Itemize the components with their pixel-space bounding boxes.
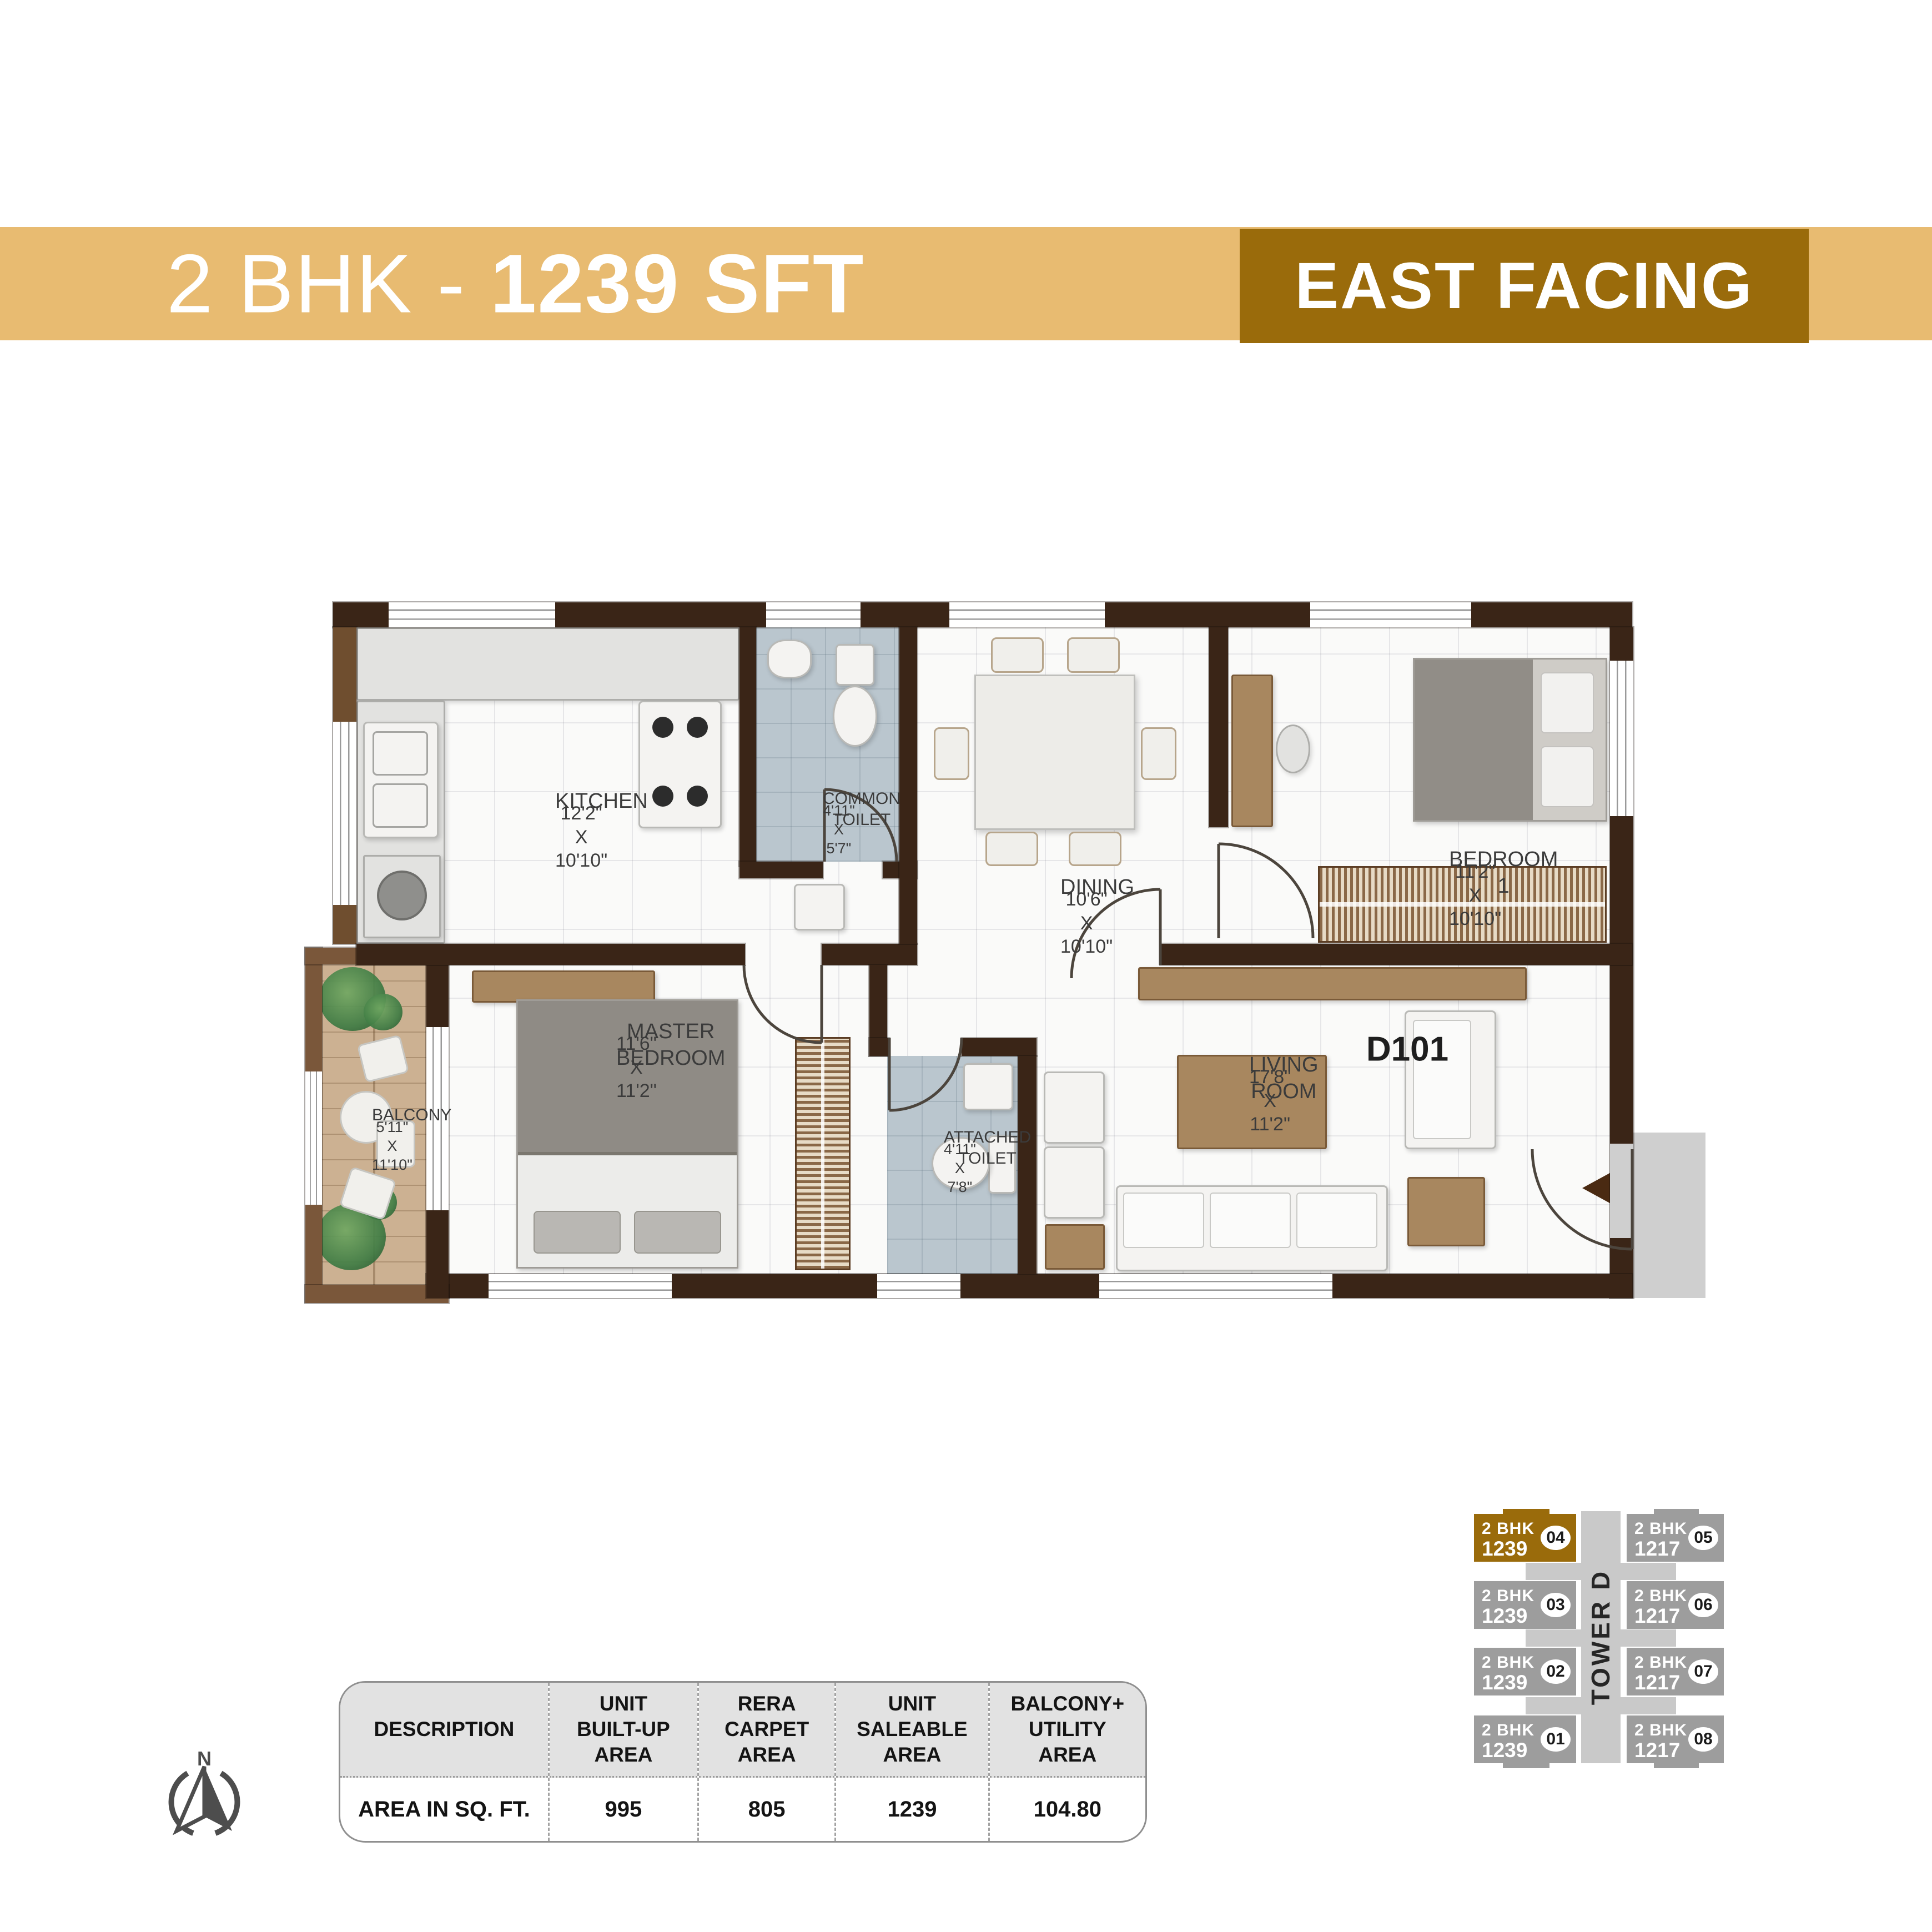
- column-header: DESCRIPTION: [340, 1683, 548, 1778]
- unit-type: 2 BHK: [1482, 1721, 1534, 1740]
- unit-type-text: 2 BHK -: [167, 237, 490, 330]
- unit-size-text: 1239 SFT: [490, 237, 865, 330]
- unit-area: 1217: [1634, 1671, 1680, 1694]
- unit-area: 1239: [1482, 1739, 1527, 1762]
- room-dims: 5'11" X 11'10": [372, 1118, 412, 1174]
- unit-number-label: D101: [1366, 1030, 1448, 1069]
- compass-icon: N: [160, 1743, 249, 1840]
- unit-area: 1239: [1482, 1604, 1527, 1628]
- keyplan-connector: [1526, 1697, 1581, 1714]
- unit-type: 2 BHK: [1634, 1587, 1687, 1606]
- north-compass: N: [160, 1743, 249, 1843]
- unit-number-badge: 02: [1541, 1659, 1571, 1684]
- brochure-page: 2 BHK - 1239 SFT EAST FACING: [0, 0, 1932, 1932]
- block-tab: [1503, 1763, 1550, 1768]
- area-table: DESCRIPTION AREA IN SQ. FT. UNIT BUILT-U…: [339, 1681, 1147, 1843]
- keyplan-unit-08: 2 BHK 1217 08: [1627, 1715, 1724, 1763]
- keyplan-unit-01: 2 BHK 1239 01: [1474, 1715, 1576, 1763]
- cell-value: 805: [699, 1778, 834, 1841]
- column-header: UNIT SALEABLE AREA: [836, 1683, 988, 1778]
- unit-type: 2 BHK: [1634, 1520, 1687, 1538]
- north-label: N: [197, 1747, 212, 1770]
- tower-key-plan: 2 BHK 1239 04 2 BHK 1217 05 2 BHK 1239 0…: [1471, 1507, 1732, 1768]
- block-tab: [1654, 1763, 1699, 1768]
- tower-label: TOWER D: [1586, 1569, 1616, 1705]
- keyplan-connector: [1621, 1629, 1676, 1647]
- room-dims: 11'6" X 11'2": [616, 1032, 657, 1103]
- keyplan-connector: [1621, 1563, 1676, 1580]
- table-column-balcony-utility: BALCONY+ UTILITY AREA 104.80: [988, 1683, 1145, 1841]
- column-header: RERA CARPET AREA: [699, 1683, 834, 1778]
- unit-number-badge: 05: [1688, 1526, 1718, 1550]
- cell-value: 1239: [836, 1778, 988, 1841]
- room-dims: 4'11" X 5'7": [823, 802, 855, 858]
- table-column-description: DESCRIPTION AREA IN SQ. FT.: [340, 1683, 548, 1841]
- unit-number-badge: 04: [1541, 1526, 1571, 1550]
- block-tab: [1654, 1509, 1699, 1515]
- facing-label: EAST FACING: [1295, 248, 1753, 324]
- page-title: 2 BHK - 1239 SFT: [167, 236, 865, 332]
- unit-type: 2 BHK: [1482, 1520, 1534, 1538]
- keyplan-unit-06: 2 BHK 1217 06: [1627, 1581, 1724, 1629]
- room-dims: 4'11" X 7'8": [944, 1140, 976, 1196]
- keyplan-connector: [1621, 1697, 1676, 1714]
- room-dims: 11'2" X 10'10": [1449, 860, 1501, 931]
- unit-number-badge: 01: [1541, 1727, 1571, 1752]
- table-column-carpet: RERA CARPET AREA 805: [697, 1683, 834, 1841]
- room-dims: 10'6" X 10'10": [1060, 888, 1113, 959]
- unit-area: 1217: [1634, 1537, 1680, 1561]
- cell-value: 104.80: [990, 1778, 1145, 1841]
- unit-number-badge: 06: [1688, 1593, 1718, 1617]
- keyplan-unit-07: 2 BHK 1217 07: [1627, 1648, 1724, 1695]
- floor-plan: KITCHEN 12'2" X 10'10" COMMON TOILET 4'1…: [305, 555, 1660, 1305]
- unit-area: 1217: [1634, 1604, 1680, 1628]
- column-header: BALCONY+ UTILITY AREA: [990, 1683, 1145, 1778]
- unit-number-badge: 07: [1688, 1659, 1718, 1684]
- unit-type: 2 BHK: [1482, 1653, 1534, 1672]
- cell-value: 995: [550, 1778, 697, 1841]
- keyplan-unit-03: 2 BHK 1239 03: [1474, 1581, 1576, 1629]
- table-column-builtup: UNIT BUILT-UP AREA 995: [548, 1683, 697, 1841]
- facing-badge: EAST FACING: [1240, 229, 1809, 343]
- keyplan-connector: [1526, 1563, 1581, 1580]
- unit-number-badge: 08: [1688, 1727, 1718, 1752]
- keyplan-connector: [1526, 1629, 1581, 1647]
- keyplan-unit-05: 2 BHK 1217 05: [1627, 1514, 1724, 1562]
- unit-area: 1239: [1482, 1537, 1527, 1561]
- unit-area: 1239: [1482, 1671, 1527, 1694]
- unit-number-badge: 03: [1541, 1593, 1571, 1617]
- column-header: UNIT BUILT-UP AREA: [550, 1683, 697, 1778]
- block-tab: [1503, 1509, 1550, 1515]
- row-label: AREA IN SQ. FT.: [340, 1778, 548, 1841]
- keyplan-unit-04: 2 BHK 1239 04: [1474, 1514, 1576, 1562]
- unit-type: 2 BHK: [1482, 1587, 1534, 1606]
- unit-area: 1217: [1634, 1739, 1680, 1762]
- unit-type: 2 BHK: [1634, 1653, 1687, 1672]
- keyplan-unit-02: 2 BHK 1239 02: [1474, 1648, 1576, 1695]
- unit-type: 2 BHK: [1634, 1721, 1687, 1740]
- room-dims: 12'2" X 10'10": [555, 802, 607, 873]
- room-dims: 17'8" X 11'2": [1249, 1065, 1291, 1136]
- table-column-saleable: UNIT SALEABLE AREA 1239: [834, 1683, 988, 1841]
